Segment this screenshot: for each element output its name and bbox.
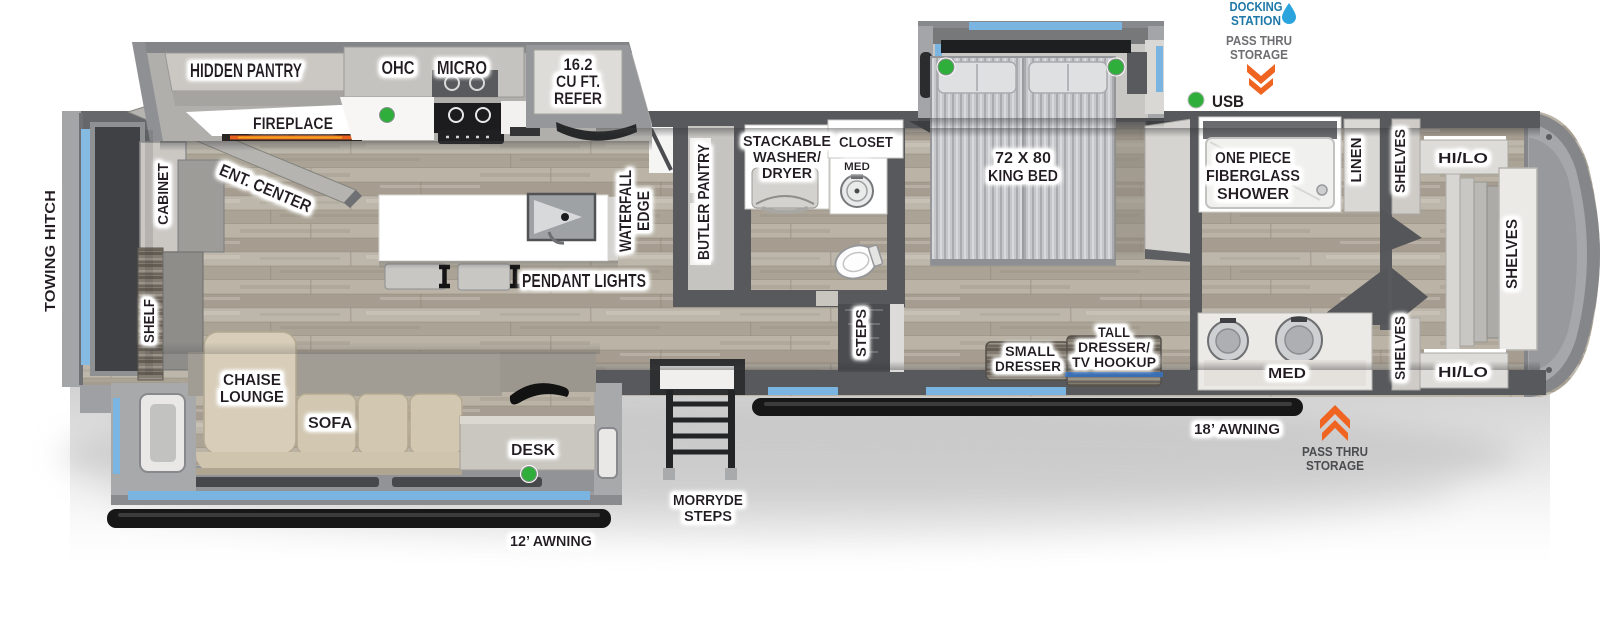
svg-text:SHOWER: SHOWER	[1217, 186, 1289, 203]
svg-text:EDGE: EDGE	[634, 191, 653, 231]
svg-text:DRYER: DRYER	[762, 165, 812, 182]
svg-text:MICRO: MICRO	[437, 58, 487, 78]
svg-text:SHELVES: SHELVES	[1504, 219, 1521, 289]
svg-text:KING BED: KING BED	[988, 168, 1058, 185]
svg-text:ONE PIECE: ONE PIECE	[1215, 150, 1291, 167]
svg-text:DOCKING: DOCKING	[1230, 0, 1283, 14]
svg-text:SHELVES: SHELVES	[1392, 316, 1409, 380]
svg-text:STATION: STATION	[1231, 13, 1281, 28]
svg-text:DRESSER: DRESSER	[995, 358, 1061, 374]
svg-text:STORAGE: STORAGE	[1306, 458, 1364, 473]
svg-text:WASHER/: WASHER/	[753, 149, 822, 166]
svg-text:DRESSER/: DRESSER/	[1078, 339, 1150, 355]
svg-text:PASS THRU: PASS THRU	[1226, 33, 1292, 48]
svg-text:MED: MED	[1268, 365, 1306, 382]
svg-text:STORAGE: STORAGE	[1230, 47, 1288, 62]
svg-text:TALL: TALL	[1098, 324, 1130, 340]
svg-text:LINEN: LINEN	[1348, 138, 1365, 183]
svg-text:USB: USB	[1212, 92, 1244, 111]
svg-text:CLOSET: CLOSET	[839, 134, 893, 151]
svg-text:HI/LO: HI/LO	[1438, 364, 1488, 381]
svg-text:TV HOOKUP: TV HOOKUP	[1072, 354, 1156, 370]
svg-text:PASS THRU: PASS THRU	[1302, 444, 1368, 459]
svg-text:SMALL: SMALL	[1005, 343, 1055, 359]
svg-text:STEPS: STEPS	[684, 508, 732, 525]
svg-text:72 X 80: 72 X 80	[995, 150, 1051, 167]
svg-text:STEPS: STEPS	[853, 309, 870, 357]
svg-text:HI/LO: HI/LO	[1438, 150, 1488, 167]
svg-text:18’ AWNING: 18’ AWNING	[1194, 421, 1280, 438]
svg-text:FIREPLACE: FIREPLACE	[253, 114, 333, 133]
svg-text:SOFA: SOFA	[308, 415, 352, 432]
svg-text:DESK: DESK	[511, 442, 555, 459]
svg-text:CHAISE: CHAISE	[223, 372, 281, 389]
svg-text:WATERFALL: WATERFALL	[616, 170, 635, 252]
svg-text:STACKABLE: STACKABLE	[743, 133, 831, 150]
svg-text:SHELVES: SHELVES	[1392, 129, 1409, 193]
svg-text:MED: MED	[844, 161, 870, 173]
svg-text:FIBERGLASS: FIBERGLASS	[1206, 168, 1300, 185]
svg-text:12’ AWNING: 12’ AWNING	[510, 533, 592, 550]
svg-text:MORRYDE: MORRYDE	[673, 492, 743, 509]
svg-text:HIDDEN PANTRY: HIDDEN PANTRY	[190, 61, 302, 82]
svg-text:LOUNGE: LOUNGE	[220, 389, 284, 406]
svg-text:SHELF: SHELF	[141, 299, 158, 343]
svg-text:PENDANT LIGHTS: PENDANT LIGHTS	[522, 271, 646, 291]
svg-text:BUTLER PANTRY: BUTLER PANTRY	[696, 144, 713, 260]
svg-text:OHC: OHC	[382, 58, 415, 78]
svg-text:REFER: REFER	[554, 89, 602, 108]
svg-text:CABINET: CABINET	[155, 163, 172, 225]
svg-text:TOWING HITCH: TOWING HITCH	[42, 190, 59, 312]
